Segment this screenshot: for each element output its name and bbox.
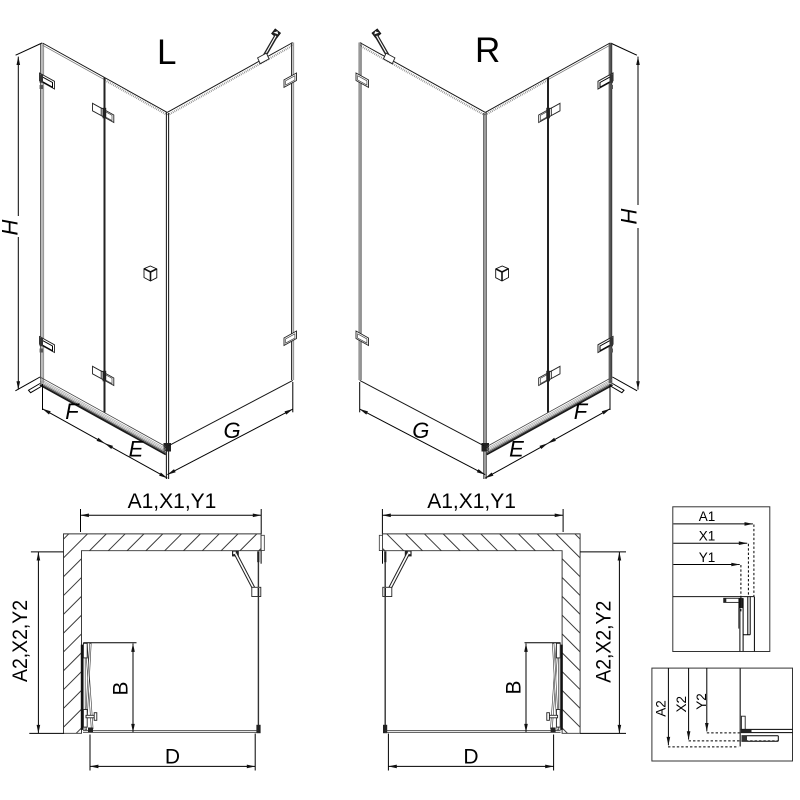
- svg-text:H: H: [0, 219, 23, 235]
- svg-text:R: R: [475, 31, 500, 70]
- svg-text:X1: X1: [699, 529, 716, 544]
- svg-text:A1,X1,Y1: A1,X1,Y1: [128, 490, 217, 513]
- svg-text:D: D: [463, 746, 478, 769]
- svg-text:G: G: [223, 418, 240, 443]
- svg-text:L: L: [157, 33, 176, 72]
- svg-text:A2,X2,Y2: A2,X2,Y2: [9, 600, 32, 682]
- svg-text:E: E: [129, 437, 144, 462]
- svg-text:A2: A2: [654, 700, 669, 717]
- svg-text:H: H: [617, 208, 642, 224]
- svg-text:D: D: [165, 746, 180, 769]
- svg-text:B: B: [503, 680, 526, 694]
- svg-text:F: F: [65, 399, 80, 424]
- svg-text:A1,X1,Y1: A1,X1,Y1: [427, 490, 516, 513]
- svg-text:A2,X2,Y2: A2,X2,Y2: [592, 601, 615, 683]
- svg-text:F: F: [574, 399, 589, 424]
- svg-text:Y1: Y1: [699, 550, 716, 565]
- svg-text:X2: X2: [674, 696, 689, 713]
- svg-text:G: G: [412, 418, 429, 443]
- svg-text:B: B: [110, 681, 133, 695]
- svg-text:E: E: [509, 437, 524, 462]
- svg-text:A1: A1: [699, 509, 716, 524]
